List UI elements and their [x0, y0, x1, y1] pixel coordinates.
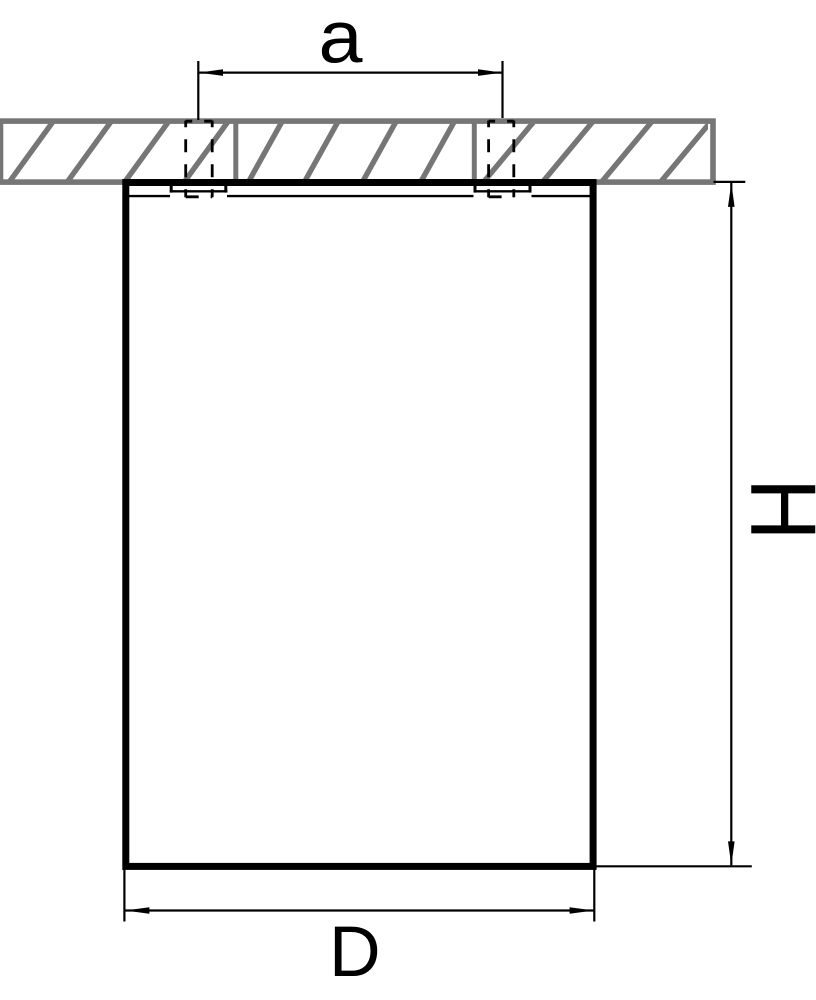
svg-text:D: D: [329, 912, 381, 992]
svg-text:H: H: [732, 478, 816, 540]
svg-text:a: a: [319, 0, 364, 79]
